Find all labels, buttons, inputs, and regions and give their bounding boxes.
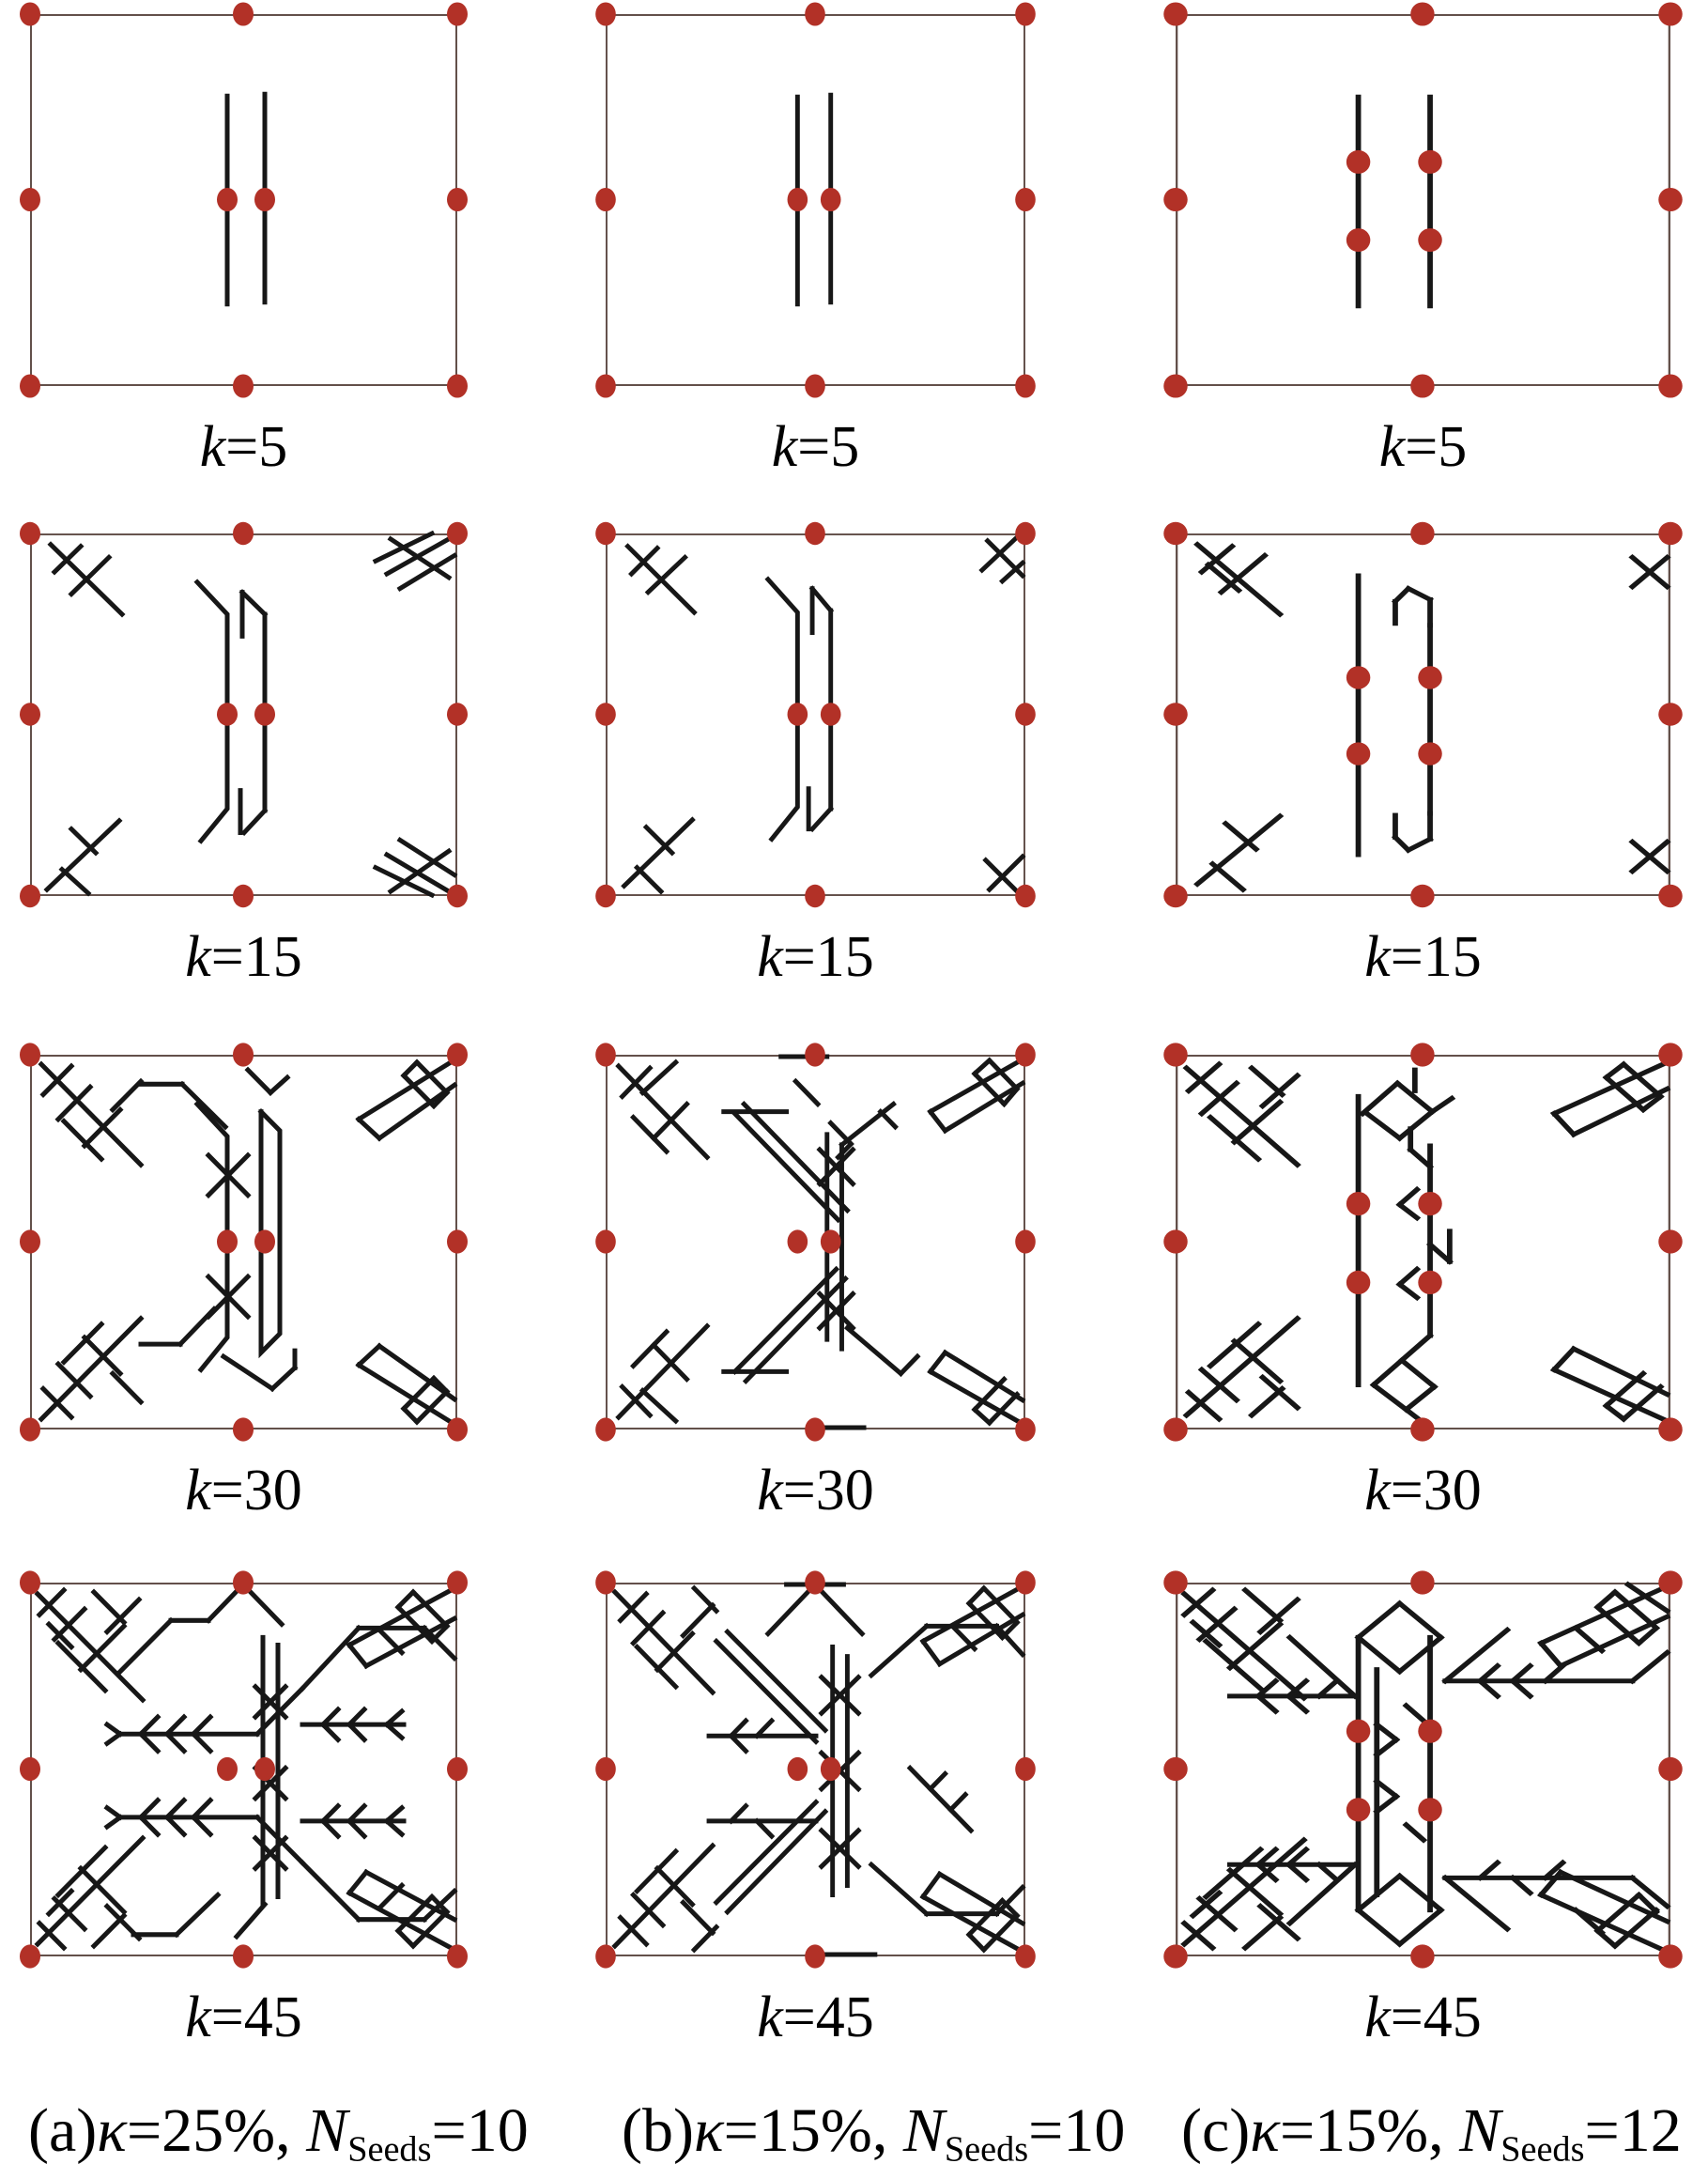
boundary-seed-dot (233, 885, 254, 907)
caption-index: (a) (28, 2096, 97, 2165)
crack-path (120, 1620, 171, 1671)
crack-path (1359, 1910, 1400, 1944)
crack-path (871, 1626, 927, 1675)
specimen-border (31, 1584, 456, 1955)
boundary-seed-dot (1658, 1944, 1682, 1968)
crack-path (193, 1817, 210, 1834)
crack-seed-dot (821, 703, 841, 725)
crack-network-svg (606, 1055, 1025, 1429)
crack-path (1404, 1362, 1434, 1386)
boundary-seed-dot (595, 188, 616, 211)
boundary-seed-dot (233, 1944, 254, 1968)
crack-path (167, 1817, 184, 1834)
crack-path (950, 1795, 965, 1810)
iteration-variable: k (772, 415, 798, 479)
boundary-seed-dot (595, 2, 616, 25)
crack-seed-dot (1346, 1720, 1370, 1743)
boundary-seed-dot (1015, 1229, 1036, 1253)
crack-path (1408, 589, 1430, 600)
crack-path (1230, 1624, 1280, 1667)
panel-a-k30 (30, 1055, 457, 1429)
caption-c: (c)κ=15%, NSeeds=12 (1181, 2100, 1682, 2168)
crack-path (990, 857, 1023, 889)
crack-path (637, 1647, 675, 1687)
boundary-seed-dot (447, 2, 468, 25)
boundary-seed-dot (447, 1229, 468, 1253)
crack-path (1400, 1205, 1418, 1218)
boundary-seed-dot (1410, 1570, 1434, 1594)
kappa-value: =25%, (127, 2096, 306, 2165)
crack-seed-dot (1418, 150, 1441, 174)
crack-path (1407, 1387, 1435, 1410)
crack-path (180, 1309, 214, 1344)
boundary-seed-dot (1658, 885, 1682, 907)
crack-path (182, 1084, 225, 1126)
boundary-seed-dot (1658, 188, 1682, 211)
panel-c-k5 (1176, 14, 1670, 386)
caption-b: (b)κ=15%, NSeeds=10 (622, 2100, 1125, 2168)
iteration-value: =5 (225, 415, 287, 479)
boundary-seed-dot (447, 703, 468, 725)
crack-path (1189, 1064, 1219, 1090)
boundary-seed-dot (447, 885, 468, 907)
boundary-seed-dot (1658, 1757, 1682, 1781)
crack-path (379, 1085, 454, 1138)
crack-path (81, 1868, 124, 1911)
crack-path (621, 1594, 647, 1620)
boundary-seed-dot (447, 1570, 468, 1594)
crack-path (1402, 1336, 1430, 1360)
boundary-seed-dot (20, 703, 40, 725)
boundary-seed-dot (447, 1944, 468, 1968)
boundary-seed-dot (1015, 2, 1036, 25)
boundary-seed-dot (1658, 1570, 1682, 1594)
crack-path (1184, 1590, 1212, 1615)
boundary-seed-dot (1658, 1043, 1682, 1066)
boundary-seed-dot (1410, 374, 1434, 397)
panel-c-k45 (1176, 1583, 1670, 1956)
boundary-seed-dot (595, 1043, 616, 1066)
crack-path (1222, 555, 1265, 592)
crack-path (1377, 1739, 1396, 1754)
boundary-seed-dot (1015, 1944, 1036, 1968)
crack-seed-dot (1418, 1798, 1441, 1821)
crack-path (642, 1391, 675, 1421)
crack-path (107, 1734, 120, 1743)
boundary-seed-dot (1015, 188, 1036, 211)
crack-path (795, 1081, 818, 1104)
crack-path (359, 1120, 379, 1138)
crack-seed-dot (1418, 666, 1441, 688)
specimen-border (607, 1584, 1024, 1955)
boundary-seed-dot (1410, 1944, 1434, 1968)
boundary-seed-dot (1163, 1757, 1187, 1781)
panel-c-k15 (1176, 533, 1670, 896)
boundary-seed-dot (447, 1757, 468, 1781)
boundary-seed-dot (1163, 522, 1187, 545)
boundary-seed-dot (20, 522, 40, 545)
boundary-seed-dot (1410, 1417, 1434, 1441)
boundary-seed-dot (20, 374, 40, 397)
crack-path (1187, 1068, 1298, 1165)
boundary-seed-dot (447, 188, 468, 211)
boundary-seed-dot (233, 2, 254, 25)
crack-seed-dot (1346, 666, 1370, 688)
crack-path (1235, 1103, 1281, 1142)
crack-network-svg (1176, 1583, 1670, 1956)
crack-path (1541, 1643, 1561, 1665)
crack-path (637, 868, 661, 891)
crack-path (167, 1717, 184, 1734)
crack-path (931, 1352, 946, 1371)
nseeds-subscript: Seeds (1500, 2130, 1584, 2170)
crack-seed-dot (1346, 742, 1370, 765)
crack-path (64, 1121, 101, 1159)
crack-path (1400, 1112, 1433, 1138)
boundary-seed-dot (595, 1757, 616, 1781)
crack-path (1400, 1269, 1418, 1284)
crack-path (359, 1346, 379, 1365)
crack-path (62, 870, 88, 893)
iteration-variable: k (200, 415, 226, 479)
crack-path (272, 1368, 295, 1388)
crack-path (735, 1269, 837, 1371)
crack-path (931, 1774, 946, 1789)
crack-path (1407, 1706, 1424, 1721)
crack-path (1632, 1653, 1667, 1681)
crack-path (1554, 1114, 1574, 1135)
crack-network-svg (606, 533, 1025, 896)
crack-path (1400, 1189, 1418, 1204)
iteration-variable: k (185, 1459, 211, 1522)
boundary-seed-dot (1163, 1229, 1187, 1253)
specimen-border (31, 1056, 456, 1429)
boundary-seed-dot (1163, 1043, 1187, 1066)
panel-b-k5 (606, 14, 1025, 386)
crack-seed-dot (788, 1229, 808, 1253)
boundary-seed-dot (20, 885, 40, 907)
specimen-border (1177, 1056, 1670, 1429)
crack-path (633, 1332, 666, 1366)
crack-path (969, 1935, 984, 1950)
iteration-label: k=5 (1176, 418, 1670, 476)
crack-path (1367, 1114, 1400, 1138)
specimen-border (1177, 1584, 1670, 1955)
specimen-border (607, 15, 1024, 385)
crack-seed-dot (1418, 1192, 1441, 1215)
boundary-seed-dot (1015, 522, 1036, 545)
iteration-variable: k (1379, 415, 1406, 479)
crack-path (71, 557, 109, 594)
crack-path (1359, 1637, 1400, 1671)
panel-c-k30 (1176, 1055, 1670, 1429)
crack-path (1377, 1782, 1396, 1797)
crack-path (58, 1364, 90, 1396)
crack-path (1374, 1360, 1402, 1384)
crack-seed-dot (788, 188, 808, 211)
crack-path (302, 1628, 359, 1688)
boundary-seed-dot (595, 1417, 616, 1441)
boundary-seed-dot (20, 2, 40, 25)
crack-path (94, 1916, 124, 1946)
crack-seed-dot (1346, 228, 1370, 252)
panel-b-k30 (606, 1055, 1025, 1429)
crack-path (923, 1874, 940, 1896)
crack-path (1245, 1918, 1280, 1948)
iteration-variable: k (757, 1459, 783, 1522)
crack-path (379, 1885, 402, 1908)
boundary-seed-dot (20, 1417, 40, 1441)
crack-seed-dot (217, 703, 238, 725)
crack-path (975, 1410, 990, 1423)
nseeds-value: =10 (431, 2096, 528, 2165)
iteration-label: k=45 (1176, 1988, 1670, 2047)
iteration-variable: k (185, 1986, 211, 2049)
crack-path (1400, 1910, 1441, 1944)
crack-path (47, 821, 119, 889)
iteration-variable: k (1364, 925, 1391, 989)
crack-path (270, 1077, 287, 1092)
crack-path (768, 1584, 815, 1633)
crack-seed-dot (1346, 1271, 1370, 1294)
boundary-seed-dot (1015, 885, 1036, 907)
crack-path (619, 1326, 707, 1417)
crack-path (1197, 816, 1280, 884)
boundary-seed-dot (805, 1043, 825, 1066)
specimen-border (31, 15, 456, 385)
nseeds-value: =12 (1584, 2096, 1681, 2165)
crack-seed-dot (217, 1757, 238, 1781)
crack-network-svg (30, 1583, 457, 1956)
crack-path (746, 1278, 845, 1381)
boundary-seed-dot (20, 1757, 40, 1781)
boundary-seed-dot (1658, 374, 1682, 397)
crack-path (242, 593, 265, 614)
iteration-label: k=45 (606, 1988, 1025, 2047)
boundary-seed-dot (805, 522, 825, 545)
crack-seed-dot (821, 1229, 841, 1253)
boundary-seed-dot (595, 885, 616, 907)
crack-path (193, 1800, 210, 1817)
nseeds-symbol: N (306, 2096, 347, 2165)
iteration-value: =15 (211, 925, 302, 989)
boundary-seed-dot (1015, 703, 1036, 725)
crack-path (1400, 1603, 1441, 1637)
crack-path (931, 1112, 946, 1131)
crack-path (113, 1081, 141, 1109)
boundary-seed-dot (1015, 1417, 1036, 1441)
boundary-seed-dot (595, 1944, 616, 1968)
boundary-seed-dot (805, 885, 825, 907)
crack-path (621, 1918, 647, 1944)
iteration-variable: k (1364, 1986, 1391, 2049)
crack-path (1410, 1150, 1430, 1167)
boundary-seed-dot (1163, 374, 1187, 397)
crack-network-svg (606, 14, 1025, 386)
boundary-seed-dot (20, 1944, 40, 1968)
boundary-seed-dot (1015, 1570, 1036, 1594)
crack-path (167, 1800, 184, 1817)
boundary-seed-dot (1163, 1570, 1187, 1594)
boundary-seed-dot (447, 522, 468, 545)
boundary-seed-dot (233, 1417, 254, 1441)
caption-index: (b) (622, 2096, 694, 2165)
boundary-seed-dot (1163, 1944, 1187, 1968)
crack-seed-dot (254, 703, 275, 725)
boundary-seed-dot (1410, 1043, 1434, 1066)
boundary-seed-dot (595, 703, 616, 725)
boundary-seed-dot (1015, 374, 1036, 397)
crack-path (244, 811, 265, 832)
crack-path (1377, 1797, 1396, 1812)
crack-path (969, 1588, 984, 1603)
crack-path (1607, 1406, 1624, 1419)
crack-path (1597, 1592, 1615, 1607)
crack-seed-dot (254, 1229, 275, 1253)
iteration-value: =5 (1405, 415, 1467, 479)
iteration-value: =45 (783, 1986, 874, 2049)
crack-path (1445, 1878, 1507, 1928)
iteration-value: =5 (797, 415, 859, 479)
crack-path (1408, 839, 1430, 850)
boundary-seed-dot (233, 1570, 254, 1594)
boundary-seed-dot (447, 374, 468, 397)
boundary-seed-dot (20, 188, 40, 211)
crack-path (404, 1062, 417, 1075)
crack-path (900, 1356, 917, 1373)
iteration-value: =45 (211, 1986, 302, 2049)
crack-path (871, 1864, 927, 1913)
crack-path (107, 1817, 120, 1827)
boundary-seed-dot (233, 1043, 254, 1066)
crack-path (113, 1373, 141, 1401)
boundary-seed-dot (447, 1417, 468, 1441)
crack-network-svg (1176, 1055, 1670, 1429)
crack-path (71, 829, 96, 853)
crack-path (716, 1802, 816, 1903)
crack-seed-dot (254, 1757, 275, 1781)
crack-path (946, 1352, 1023, 1400)
crack-path (193, 1734, 210, 1751)
panel-a-k45 (30, 1583, 457, 1956)
crack-path (379, 1630, 402, 1652)
crack-path (1374, 1385, 1407, 1410)
boundary-seed-dot (447, 1043, 468, 1066)
boundary-seed-dot (1410, 522, 1434, 545)
crack-path (1252, 1068, 1282, 1094)
crack-path (642, 1062, 675, 1092)
crack-path (847, 1328, 900, 1373)
kappa-symbol: κ (1250, 2096, 1280, 2165)
crack-path (841, 1105, 893, 1145)
crack-path (404, 1409, 417, 1422)
crack-path (1235, 1341, 1281, 1381)
crack-path (359, 1365, 451, 1422)
crack-path (923, 1641, 940, 1663)
panel-a-k5 (30, 14, 457, 386)
boundary-seed-dot (595, 522, 616, 545)
crack-seed-dot (1418, 228, 1441, 252)
boundary-seed-dot (1163, 2, 1187, 25)
nseeds-symbol: N (903, 2096, 945, 2165)
crack-path (728, 1812, 825, 1912)
panel-b-k45 (606, 1583, 1025, 1956)
crack-seed-dot (1346, 1192, 1370, 1215)
crack-path (398, 1897, 432, 1931)
crack-seed-dot (217, 1229, 238, 1253)
boundary-seed-dot (20, 1570, 40, 1594)
iteration-value: =30 (211, 1459, 302, 1522)
boundary-seed-dot (805, 1417, 825, 1441)
crack-path (81, 1626, 124, 1669)
crack-path (1615, 1910, 1656, 1946)
crack-path (694, 1588, 716, 1611)
panel-a-k15 (30, 533, 457, 896)
iteration-label: k=15 (1176, 928, 1670, 986)
caption-a: (a)κ=25%, NSeeds=10 (28, 2100, 529, 2168)
crack-path (881, 1112, 896, 1127)
crack-network-svg (30, 533, 457, 896)
crack-path (1362, 1083, 1397, 1113)
crack-seed-dot (1418, 1720, 1441, 1743)
crack-path (349, 1646, 366, 1666)
iteration-label: k=5 (606, 418, 1025, 476)
crack-path (141, 1800, 158, 1817)
crack-path (1245, 1590, 1280, 1620)
iteration-value: =15 (783, 925, 874, 989)
crack-seed-dot (821, 188, 841, 211)
crack-path (975, 1060, 990, 1074)
crack-path (1407, 1825, 1424, 1840)
boundary-seed-dot (1163, 703, 1187, 725)
boundary-seed-dot (1658, 2, 1682, 25)
crack-path (58, 1087, 90, 1119)
crack-path (398, 1931, 413, 1946)
boundary-seed-dot (1015, 1043, 1036, 1066)
crack-path (684, 1903, 713, 1933)
crack-path (141, 1817, 158, 1834)
boundary-seed-dot (805, 1944, 825, 1968)
kappa-symbol: κ (694, 2096, 724, 2165)
iteration-label: k=5 (30, 418, 457, 476)
specimen-border (1177, 15, 1670, 385)
boundary-seed-dot (1163, 188, 1187, 211)
boundary-seed-dot (1163, 885, 1187, 907)
crack-seed-dot (1346, 150, 1370, 174)
boundary-seed-dot (1410, 885, 1434, 907)
crack-path (1184, 1924, 1212, 1948)
crack-path (1377, 1724, 1396, 1739)
nseeds-value: =10 (1028, 2096, 1125, 2165)
crack-path (735, 1114, 839, 1220)
specimen-border (607, 1056, 1024, 1429)
boundary-seed-dot (20, 1043, 40, 1066)
crack-path (177, 1895, 218, 1935)
crack-path (1400, 1637, 1441, 1671)
caption-index: (c) (1181, 2096, 1250, 2165)
boundary-seed-dot (1658, 522, 1682, 545)
crack-seed-dot (788, 703, 808, 725)
crack-path (1554, 1349, 1574, 1369)
crack-path (193, 1717, 210, 1734)
crack-path (812, 589, 831, 610)
crack-path (349, 1872, 366, 1893)
crack-path (64, 1324, 101, 1362)
kappa-symbol: κ (97, 2096, 127, 2165)
iteration-label: k=30 (606, 1461, 1025, 1520)
crack-path (237, 1905, 265, 1937)
crack-path (1607, 1064, 1624, 1077)
